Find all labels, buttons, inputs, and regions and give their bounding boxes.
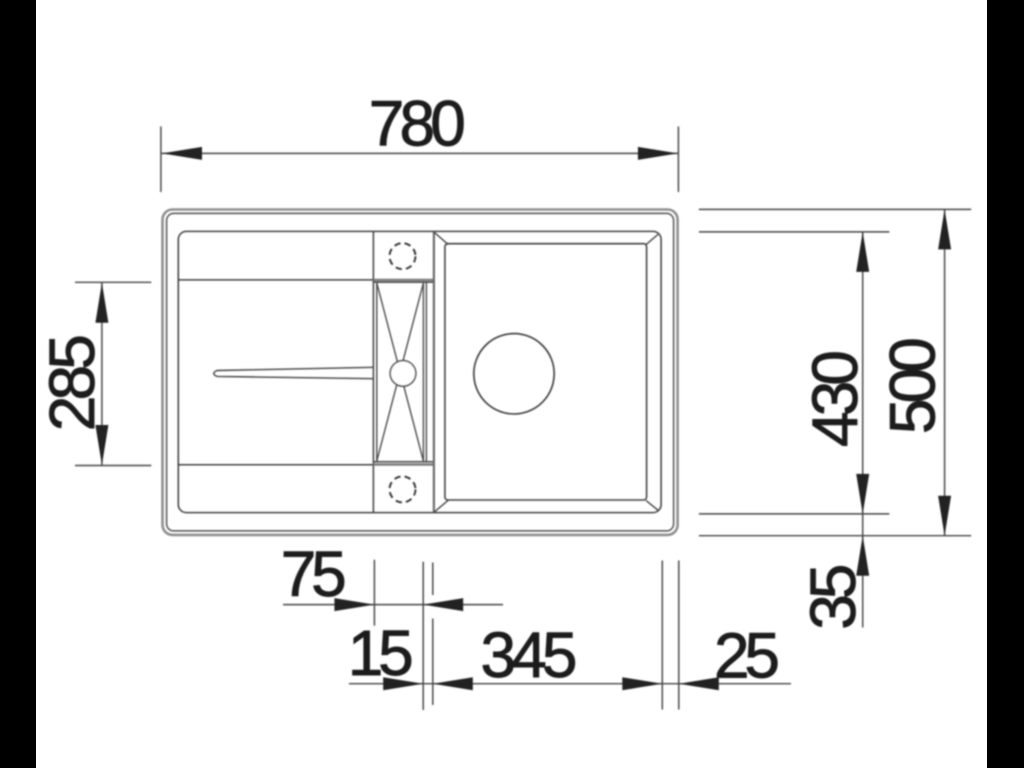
svg-text:35: 35	[797, 564, 869, 630]
svg-text:345: 345	[481, 619, 578, 691]
svg-text:500: 500	[877, 337, 949, 434]
svg-text:430: 430	[799, 350, 871, 447]
svg-text:285: 285	[36, 334, 108, 431]
svg-text:75: 75	[281, 538, 347, 610]
svg-text:15: 15	[348, 617, 414, 689]
svg-text:25: 25	[714, 620, 780, 692]
svg-text:780: 780	[369, 87, 466, 159]
